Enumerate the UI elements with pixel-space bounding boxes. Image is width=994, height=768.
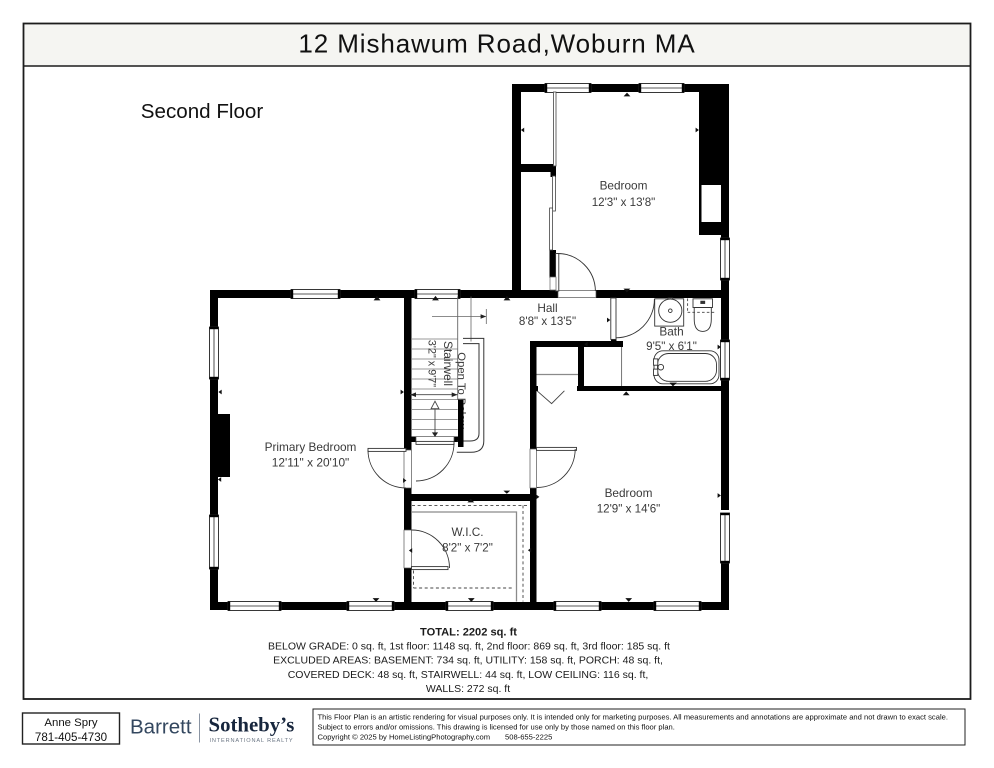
- svg-text:WALLS: 272 sq. ft: WALLS: 272 sq. ft: [426, 683, 510, 695]
- svg-text:Sotheby’s: Sotheby’s: [209, 714, 295, 737]
- svg-text:12 Mishawum Road,Woburn MA: 12 Mishawum Road,Woburn MA: [298, 29, 695, 59]
- svg-text:Hall: Hall: [537, 301, 557, 315]
- svg-text:Stairwell: Stairwell: [441, 341, 455, 386]
- svg-text:INTERNATIONAL REALTY: INTERNATIONAL REALTY: [209, 738, 293, 744]
- svg-text:Barrett: Barrett: [130, 716, 192, 739]
- svg-text:Bedroom: Bedroom: [605, 486, 653, 500]
- svg-text:8'8" x 13'5": 8'8" x 13'5": [519, 315, 576, 328]
- svg-text:W.I.C.: W.I.C.: [451, 525, 483, 539]
- svg-text:Primary Bedroom: Primary Bedroom: [265, 440, 357, 454]
- svg-text:Anne Spry: Anne Spry: [44, 717, 97, 729]
- svg-text:3'2" x 9'7": 3'2" x 9'7": [426, 340, 438, 387]
- svg-text:Bath: Bath: [659, 325, 683, 339]
- svg-text:Second Floor: Second Floor: [141, 100, 264, 123]
- svg-text:8'2" x 7'2": 8'2" x 7'2": [442, 542, 493, 555]
- svg-text:12'3" x 13'8": 12'3" x 13'8": [592, 196, 656, 209]
- svg-text:Copyright © 2025 by HomeListin: Copyright © 2025 by HomeListingPhotograp…: [318, 733, 491, 742]
- svg-text:TOTAL: 2202 sq. ft: TOTAL: 2202 sq. ft: [420, 627, 517, 639]
- svg-text:9'5" x 6'1": 9'5" x 6'1": [646, 340, 697, 353]
- svg-text:This Floor Plan is an artistic: This Floor Plan is an artistic rendering…: [318, 713, 948, 722]
- svg-text:12'11" x 20'10": 12'11" x 20'10": [272, 456, 350, 470]
- svg-text:12'9" x 14'6": 12'9" x 14'6": [597, 503, 661, 516]
- svg-text:COVERED DECK: 48 sq. ft, STAIR: COVERED DECK: 48 sq. ft, STAIRWELL: 44 s…: [288, 669, 649, 681]
- svg-text:781-405-4730: 781-405-4730: [35, 731, 107, 744]
- svg-text:BELOW GRADE: 0 sq. ft, 1st flo: BELOW GRADE: 0 sq. ft, 1st floor: 1148 s…: [268, 641, 670, 653]
- svg-text:EXCLUDED AREAS: BASEMENT: 734: EXCLUDED AREAS: BASEMENT: 734 sq. ft, UT…: [273, 655, 663, 667]
- svg-text:508-655-2225: 508-655-2225: [505, 733, 552, 742]
- svg-text:Bedroom: Bedroom: [600, 179, 648, 193]
- svg-text:Subject to errors and/or omiss: Subject to errors and/or omissions. This…: [318, 723, 675, 732]
